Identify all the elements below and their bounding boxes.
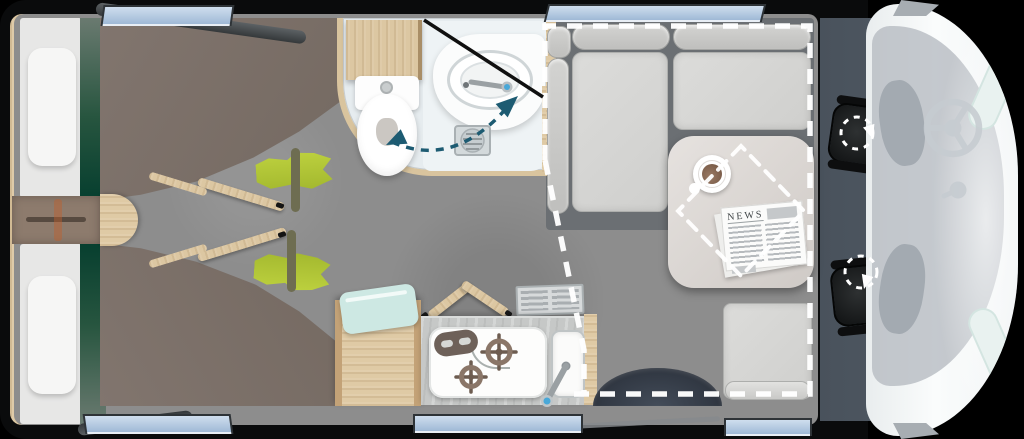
gear-knob	[944, 182, 967, 199]
shower-drain	[455, 126, 490, 155]
swivel-arrow-seat-bottom	[845, 256, 877, 291]
hob-burner-large	[482, 335, 516, 369]
bathroom-swivel-arrow	[383, 89, 524, 152]
floorplan-canvas: NEWS	[0, 0, 1024, 439]
annotations-overlay	[0, 0, 1024, 439]
hob-burner-small	[456, 362, 486, 392]
steering-wheel	[927, 102, 979, 154]
basin-faucet	[463, 82, 513, 93]
swivel-arrow-seat-top	[841, 117, 879, 149]
sink-faucet	[541, 362, 571, 408]
table-extension-outline	[678, 146, 804, 276]
